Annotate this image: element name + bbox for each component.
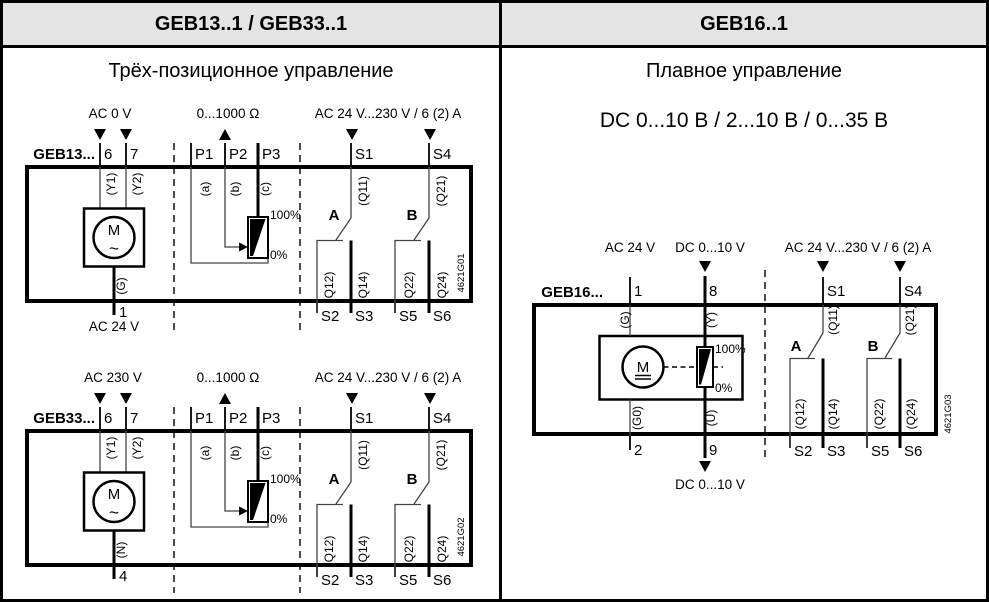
switch-a-label: A <box>329 471 340 488</box>
geb13-connection-arrows <box>94 129 436 140</box>
terminal-s3: S3 <box>355 308 373 325</box>
down-arrow-icon <box>699 261 711 272</box>
header-cell-geb13-geb33: GEB13..1 / GEB33..1 <box>3 3 499 48</box>
terminal-s6: S6 <box>433 572 451 589</box>
wire-c: (c) <box>258 182 272 196</box>
ac-wave-symbol: ~ <box>109 239 119 258</box>
wiper-arrow-icon <box>239 243 248 252</box>
wire-y1: (Y1) <box>104 437 118 460</box>
wire-g0: (G0) <box>630 406 644 430</box>
pot-max-label: 100% <box>715 342 746 356</box>
wire-q11: (Q11) <box>356 440 370 470</box>
relay-rating-label: AC 24 V...230 V / 6 (2) A <box>315 106 462 121</box>
wire-q22: (Q22) <box>402 272 416 303</box>
relay-rating-label: AC 24 V...230 V / 6 (2) A <box>785 240 932 255</box>
terminal-p3: P3 <box>262 146 280 163</box>
header-title-left: GEB13..1 / GEB33..1 <box>155 13 347 36</box>
pot-min-label: 0% <box>270 248 288 262</box>
terminal-s3: S3 <box>355 572 373 589</box>
supply-top-label: AC 0 V <box>89 106 132 121</box>
wire-q21: (Q21) <box>434 176 448 207</box>
terminal-s2: S2 <box>321 572 339 589</box>
wire-a: (a) <box>198 446 212 461</box>
switch-b-label: B <box>868 338 879 355</box>
wire-q12: (Q12) <box>322 536 336 567</box>
wire-q11: (Q11) <box>356 176 370 206</box>
ref-code: 4621G03 <box>943 394 954 433</box>
down-arrow-icon <box>346 129 358 140</box>
ac-wave-symbol: ~ <box>109 503 119 522</box>
down-arrow-icon <box>424 393 436 404</box>
terminal-s5: S5 <box>399 572 417 589</box>
terminal-4: 4 <box>119 568 127 585</box>
terminal-9: 9 <box>709 442 717 459</box>
right-signal-range: DC 0...10 В / 2...10 В / 0...35 В <box>502 109 986 133</box>
terminal-s4: S4 <box>433 146 451 163</box>
terminal-s2: S2 <box>794 443 812 460</box>
up-arrow-icon <box>219 129 231 140</box>
terminal-8: 8 <box>709 283 717 300</box>
terminal-1: 1 <box>634 283 642 300</box>
wire-q14: (Q14) <box>356 536 370 567</box>
supply-top-label: AC 230 V <box>84 370 142 385</box>
terminal-s6: S6 <box>904 443 922 460</box>
wiper-arrow-icon <box>239 507 248 516</box>
wire-y2: (Y2) <box>130 173 144 196</box>
ref-code: 4621G01 <box>456 253 467 292</box>
wire-q12: (Q12) <box>322 272 336 303</box>
model-label: GEB33... <box>33 410 95 427</box>
terminal-2: 2 <box>634 442 642 459</box>
terminal-s3: S3 <box>827 443 845 460</box>
terminal-p2: P2 <box>229 410 247 427</box>
pot-min-label: 0% <box>715 381 733 395</box>
wire-b: (b) <box>228 182 242 197</box>
geb16-labels: AC 24 V DC 0...10 V AC 24 V...230 V / 6 … <box>541 240 954 492</box>
dc-motor-underline <box>635 376 651 380</box>
geb33-labels: AC 230 V 0...1000 Ω AC 24 V...230 V / 6 … <box>33 370 467 589</box>
model-label: GEB16... <box>541 284 603 301</box>
terminal-s1: S1 <box>827 283 845 300</box>
wire-q11: (Q11) <box>826 305 840 335</box>
down-arrow-icon <box>424 129 436 140</box>
terminal-s4: S4 <box>433 410 451 427</box>
wire-q24: (Q24) <box>435 272 449 303</box>
switch-blade <box>885 333 900 358</box>
wire-q22: (Q22) <box>402 536 416 567</box>
wire-q12: (Q12) <box>793 399 807 430</box>
terminal-p2: P2 <box>229 146 247 163</box>
diagram-geb33: M ~ AC 230 V 0...1000 Ω AC 24 V <box>3 352 500 602</box>
pot-max-label: 100% <box>270 472 301 486</box>
wire-q21: (Q21) <box>903 305 917 336</box>
down-arrow-icon <box>894 261 906 272</box>
wire-q24: (Q24) <box>904 399 918 430</box>
down-arrow-icon <box>94 393 106 404</box>
terminal-6: 6 <box>104 410 112 427</box>
output-bottom-label: DC 0...10 V <box>675 477 745 492</box>
wiring-diagram-page: GEB13..1 / GEB33..1 GEB16..1 Трёх-позици… <box>0 0 989 602</box>
header-cell-geb16: GEB16..1 <box>502 3 986 48</box>
left-subtitle: Трёх-позиционное управление <box>3 60 499 83</box>
switch-a-label: A <box>791 338 802 355</box>
wire-n: (N) <box>114 542 128 559</box>
diagram-geb16: M AC 24 V DC 0...10 V A <box>503 230 989 502</box>
geb33-connection-arrows <box>94 393 436 404</box>
supply-bottom-label: AC 24 V <box>89 319 139 334</box>
relay-rating-label: AC 24 V...230 V / 6 (2) A <box>315 370 462 385</box>
wire-q24: (Q24) <box>435 536 449 567</box>
switch-b-label: B <box>407 207 418 224</box>
wire-u: (U) <box>704 410 718 427</box>
diagram-geb13: M ~ AC 0 V 0...1000 Ω AC 24 V.. <box>3 88 500 348</box>
wire-y1: (Y1) <box>104 173 118 196</box>
terminal-p1: P1 <box>195 410 213 427</box>
terminal-s1: S1 <box>355 410 373 427</box>
switch-b-label: B <box>407 471 418 488</box>
pot-range-label: 0...1000 Ω <box>197 370 260 385</box>
wire-a: (a) <box>198 182 212 197</box>
terminal-s2: S2 <box>321 308 339 325</box>
pot-min-label: 0% <box>270 512 288 526</box>
up-arrow-icon <box>219 393 231 404</box>
wire-y: (Y) <box>704 312 718 328</box>
down-arrow-icon <box>120 129 132 140</box>
wire-q14: (Q14) <box>826 399 840 430</box>
wire-q14: (Q14) <box>356 272 370 303</box>
down-arrow-icon <box>817 261 829 272</box>
terminal-p3: P3 <box>262 410 280 427</box>
wire-y2: (Y2) <box>130 437 144 460</box>
switch-blade <box>808 333 823 358</box>
supply-top-label: AC 24 V <box>605 240 655 255</box>
geb16-connection-arrows <box>699 261 906 472</box>
terminal-s4: S4 <box>904 283 922 300</box>
pot-max-label: 100% <box>270 208 301 222</box>
terminal-7: 7 <box>130 146 138 163</box>
model-label: GEB13... <box>33 146 95 163</box>
down-arrow-icon <box>699 461 711 472</box>
terminal-6: 6 <box>104 146 112 163</box>
switch-a-label: A <box>329 207 340 224</box>
wire-q22: (Q22) <box>872 399 886 430</box>
down-arrow-icon <box>94 129 106 140</box>
geb16-terminal-ticks <box>630 277 900 450</box>
down-arrow-icon <box>120 393 132 404</box>
terminal-s5: S5 <box>871 443 889 460</box>
pot-range-label: 0...1000 Ω <box>197 106 260 121</box>
right-subtitle: Плавное управление <box>502 60 986 83</box>
wire-q21: (Q21) <box>434 440 448 471</box>
header-title-right: GEB16..1 <box>700 13 788 36</box>
terminal-7: 7 <box>130 410 138 427</box>
input-top-label: DC 0...10 V <box>675 240 745 255</box>
terminal-p1: P1 <box>195 146 213 163</box>
ref-code: 4621G02 <box>456 517 467 556</box>
down-arrow-icon <box>346 393 358 404</box>
terminal-s6: S6 <box>433 308 451 325</box>
motor-label: M <box>637 359 650 376</box>
wire-g: (G) <box>114 277 128 294</box>
wire-c: (c) <box>258 446 272 460</box>
motor-label: M <box>108 222 121 239</box>
wire-b: (b) <box>228 446 242 461</box>
wire-g: (G) <box>618 311 632 328</box>
terminal-s1: S1 <box>355 146 373 163</box>
motor-label: M <box>108 486 121 503</box>
terminal-s5: S5 <box>399 308 417 325</box>
